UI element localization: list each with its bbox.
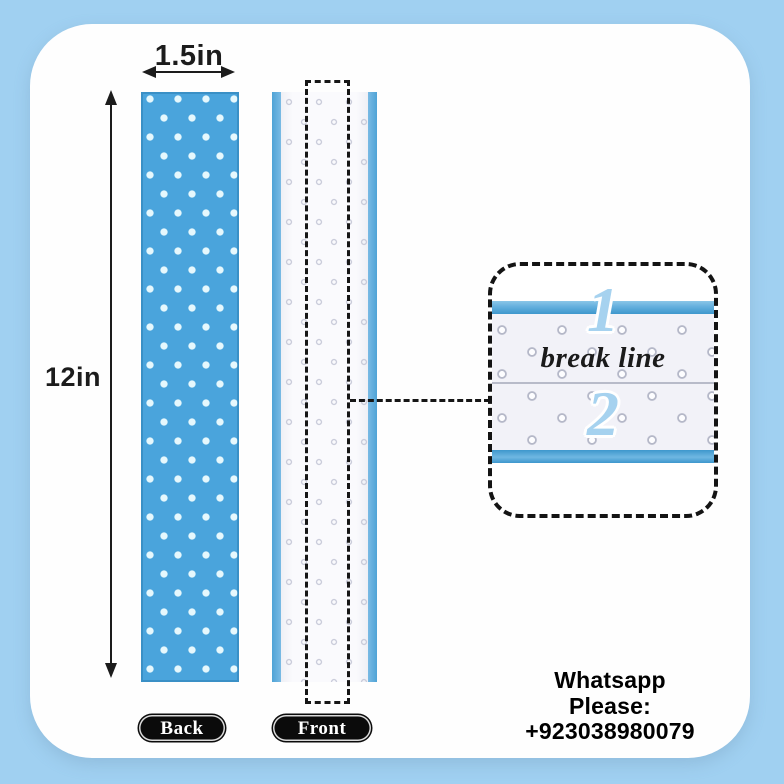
arrow-shaft [145,71,232,74]
height-dimension-label: 12in [42,362,104,393]
break-line-detail-callout: 1 break line 2 [488,262,718,518]
front-label: Front [298,719,347,738]
front-strip-left-blue-edge [272,92,281,682]
back-label: Back [160,719,203,738]
detail-bottom-blue-bar [492,450,714,463]
arrow-shaft [110,94,113,674]
whatsapp-contact-line-2: Please: [495,694,725,720]
width-dimension-arrow [142,64,235,80]
callout-connector-dashed-line [350,399,490,402]
break-line-caption: break line [492,342,714,375]
whatsapp-contact-number: +923038980079 [495,719,725,745]
arrowhead-down-icon [105,663,117,678]
height-dimension-arrow [103,90,119,678]
zoom-region-dashed-outline [305,80,350,704]
arrowhead-right-icon [221,66,235,78]
front-strip-right-blue-edge [368,92,377,682]
back-label-pill: Back [139,715,225,741]
back-tape-strip [141,92,239,682]
segment-number-1: 1 [492,280,714,340]
whatsapp-contact: Whatsapp Please: +923038980079 [495,668,725,745]
whatsapp-contact-line-1: Whatsapp [495,668,725,694]
product-diagram: 1.5in 12in 1 break line 2 Back Front [0,0,784,784]
segment-number-2: 2 [492,384,714,444]
front-label-pill: Front [273,715,371,741]
